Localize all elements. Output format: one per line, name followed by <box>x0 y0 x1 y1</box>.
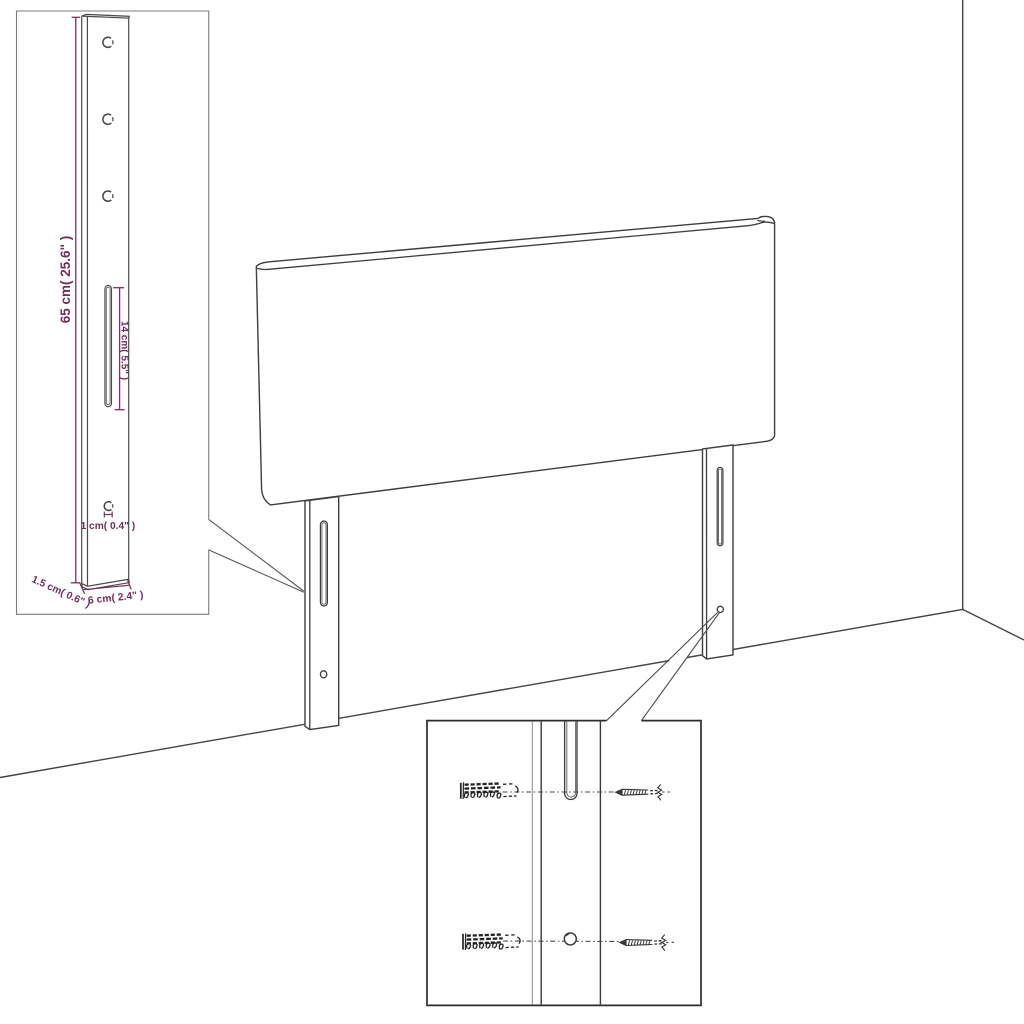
svg-text:1 cm( 0.4" ): 1 cm( 0.4" ) <box>81 521 136 532</box>
svg-text:65 cm( 25.6" ): 65 cm( 25.6" ) <box>58 236 73 323</box>
svg-text:14 cm( 5.5" ): 14 cm( 5.5" ) <box>119 321 130 380</box>
